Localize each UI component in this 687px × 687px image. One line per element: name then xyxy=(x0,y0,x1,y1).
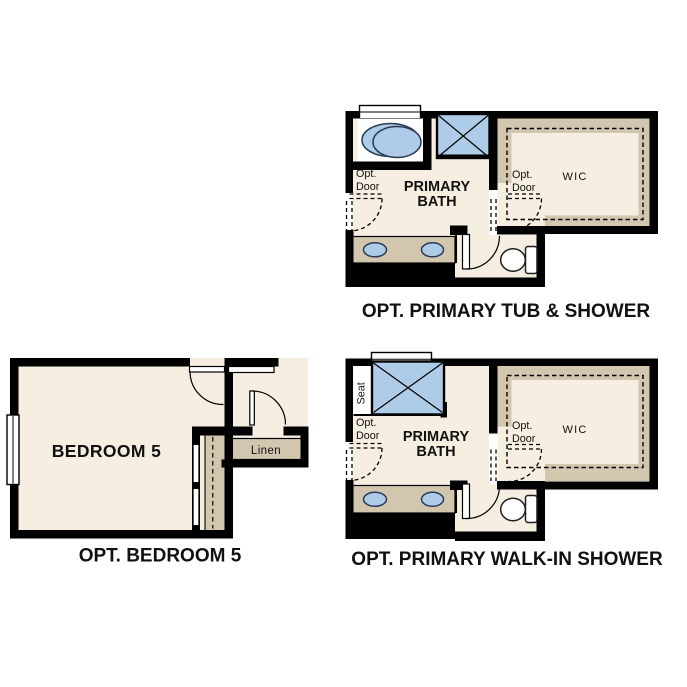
room-label-primary: PRIMARY xyxy=(404,179,471,195)
opt-door-label: Door xyxy=(512,182,536,194)
opt-door-label: Door xyxy=(356,430,380,442)
room-label-bath: BATH xyxy=(416,444,455,460)
plan-caption: OPT. PRIMARY TUB & SHOWER xyxy=(362,301,650,322)
floorplan-page: Opt. Door PRIMARY BATH Opt. Door WIC OPT… xyxy=(0,0,687,687)
shower xyxy=(437,114,490,159)
opt-door-label: Opt. xyxy=(512,169,532,181)
opt-door-label: Door xyxy=(356,181,380,193)
room-label-primary: PRIMARY xyxy=(403,429,470,445)
plan-opt-primary-walk-in-shower: Seat Opt. Door PRIMARY BATH Opt. Door WI… xyxy=(346,353,663,571)
opt-door-label: Opt. xyxy=(356,168,376,180)
plan-opt-primary-tub-and-shower: Opt. Door PRIMARY BATH Opt. Door WIC OPT… xyxy=(346,106,659,323)
wic-label: WIC xyxy=(563,171,588,183)
bathtub xyxy=(358,119,423,162)
plan-caption: OPT. BEDROOM 5 xyxy=(79,546,242,567)
toilet xyxy=(501,247,537,274)
floorplan-canvas: Opt. Door PRIMARY BATH Opt. Door WIC OPT… xyxy=(0,0,687,687)
plan-caption: OPT. PRIMARY WALK-IN SHOWER xyxy=(351,549,663,570)
opt-door-label: Opt. xyxy=(356,417,376,429)
opt-door-label: Opt. xyxy=(512,420,532,432)
window xyxy=(360,106,421,119)
linen-label: Linen xyxy=(251,445,281,457)
plan-opt-bedroom-5: BEDROOM 5 Linen OPT. BEDROOM 5 xyxy=(7,358,309,567)
opt-door-label: Door xyxy=(512,433,536,445)
room-label-bath: BATH xyxy=(417,194,456,210)
room-label-bedroom: BEDROOM 5 xyxy=(52,441,162,461)
wic-label: WIC xyxy=(563,424,588,436)
toilet xyxy=(501,496,537,523)
window xyxy=(7,415,19,485)
cased-opening xyxy=(229,367,275,373)
seat-label: Seat xyxy=(356,382,368,404)
